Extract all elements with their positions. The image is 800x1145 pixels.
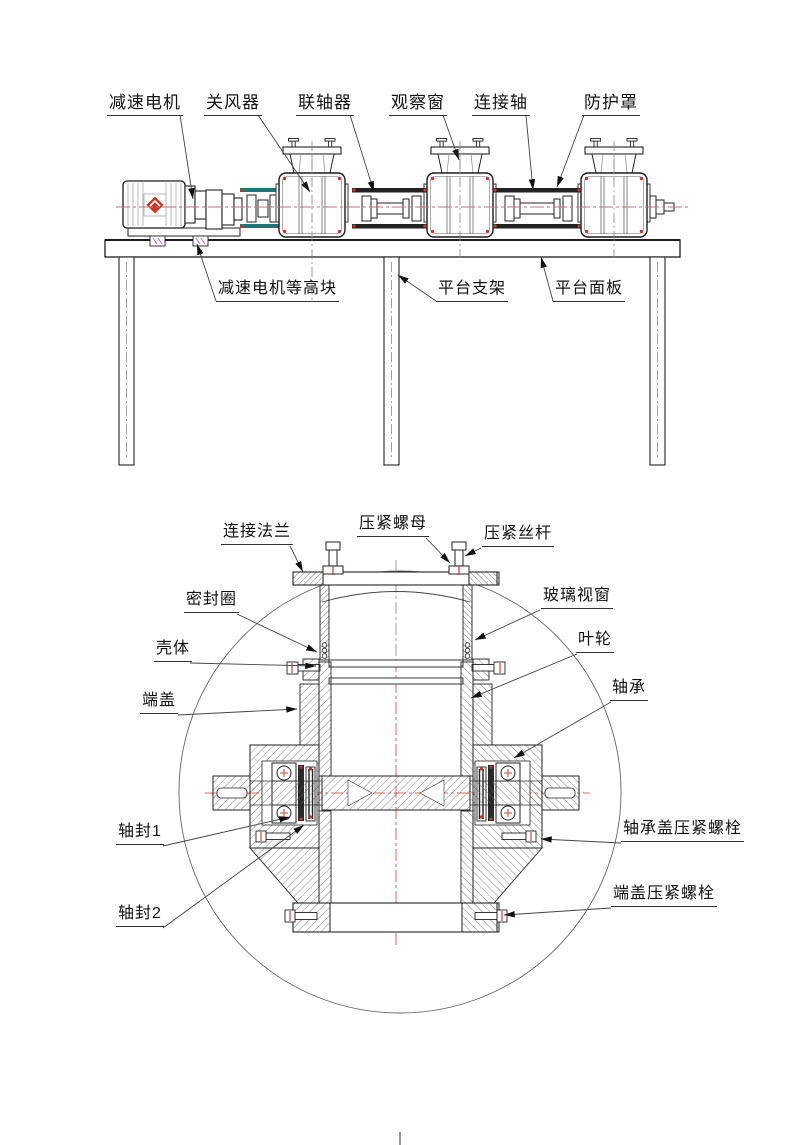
label-platform-panel: 平台面板 xyxy=(553,279,625,302)
label-connecting-shaft: 连接轴 xyxy=(472,93,530,116)
shaft-guard-2 xyxy=(493,188,581,229)
label-end-cover: 端盖 xyxy=(140,691,178,714)
platform-leg xyxy=(650,257,665,465)
label-seal-ring: 密封圈 xyxy=(184,590,239,613)
label-rotary-valve: 关风器 xyxy=(204,93,262,116)
platform-table xyxy=(105,240,680,465)
leveling-block xyxy=(193,236,208,246)
label-coupling: 联轴器 xyxy=(296,93,354,116)
label-shaft-seal-2: 轴封2 xyxy=(116,904,164,927)
label-shaft-seal-1: 轴封1 xyxy=(116,822,164,845)
label-end-cover-bolt: 端盖压紧螺栓 xyxy=(611,884,717,907)
label-compression-nut: 压紧螺母 xyxy=(357,514,429,537)
drawing-sheet: 减速电机 关风器 联轴器 观察窗 连接轴 防护罩 减速电机等高块 平台支架 平台… xyxy=(0,0,800,1145)
platform-leg xyxy=(119,257,134,465)
label-motor-leveling-block: 减速电机等高块 xyxy=(216,279,339,302)
label-protective-cover: 防护罩 xyxy=(582,93,640,116)
technical-drawing xyxy=(0,0,800,1145)
rotor-hub xyxy=(322,776,470,810)
label-housing: 壳体 xyxy=(154,639,192,662)
leveling-block xyxy=(150,236,165,246)
label-gear-motor: 减速电机 xyxy=(107,93,183,116)
label-bearing-cover-bolt: 轴承盖压紧螺栓 xyxy=(621,819,744,842)
label-impeller: 叶轮 xyxy=(576,630,614,653)
label-observation-window: 观察窗 xyxy=(389,93,447,116)
gearbox xyxy=(206,190,242,229)
valve-section-drawing xyxy=(163,538,621,1145)
label-connecting-flange: 连接法兰 xyxy=(221,522,293,545)
platform-leg xyxy=(384,257,399,465)
label-platform-support: 平台支架 xyxy=(436,279,508,302)
shaft-guard-1 xyxy=(352,188,427,229)
label-bearing: 轴承 xyxy=(610,678,648,701)
gear-motor xyxy=(123,181,206,228)
label-compression-screw: 压紧丝杆 xyxy=(482,524,554,547)
motor-base-plate xyxy=(128,228,240,236)
label-glass-window: 玻璃视窗 xyxy=(541,586,613,609)
